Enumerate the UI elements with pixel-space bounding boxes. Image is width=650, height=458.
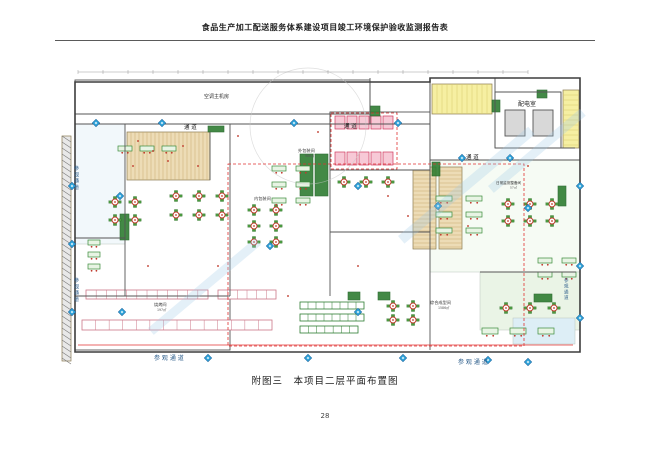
red-dot bbox=[407, 215, 409, 217]
red-dot bbox=[147, 265, 149, 267]
equipment-row bbox=[300, 314, 364, 321]
red-dot bbox=[217, 265, 219, 267]
red-dot bbox=[167, 160, 169, 162]
camera-marker-icon bbox=[304, 354, 311, 361]
machine-unit bbox=[492, 100, 500, 112]
equipment-row bbox=[82, 320, 272, 330]
machine-unit bbox=[315, 154, 328, 196]
machine-unit bbox=[120, 214, 129, 240]
camera-marker-icon bbox=[204, 354, 211, 361]
toilet-stalls bbox=[335, 152, 393, 165]
header-divider bbox=[55, 40, 595, 41]
room-label: 197㎡ bbox=[157, 307, 167, 312]
red-dot bbox=[467, 225, 469, 227]
camera-marker-icon bbox=[290, 119, 297, 126]
red-dot bbox=[132, 165, 134, 167]
room-label: 外包装间 bbox=[298, 147, 315, 154]
floorplan-figure: 通 道通 道通 道配电室空调主机房外包装间986㎡内包装间综合成型间1586㎡烧… bbox=[58, 66, 592, 370]
room bbox=[533, 110, 553, 136]
equipment-row bbox=[218, 290, 276, 299]
red-dot bbox=[387, 195, 389, 197]
visitor-corridor-label: 参观通道 bbox=[74, 165, 79, 191]
machine-unit bbox=[348, 292, 360, 300]
red-dot bbox=[357, 265, 359, 267]
hatched-area bbox=[432, 84, 492, 114]
room-label: 内包装间 bbox=[254, 195, 271, 202]
hatched-area bbox=[127, 132, 210, 180]
red-dot bbox=[152, 150, 154, 152]
red-dot bbox=[287, 295, 289, 297]
table-cluster bbox=[338, 177, 394, 188]
room-label: 通 道 bbox=[184, 123, 197, 131]
table-cluster bbox=[387, 301, 419, 326]
room-tint bbox=[75, 124, 125, 244]
camera-marker-icon bbox=[158, 119, 165, 126]
equipment-row bbox=[300, 326, 358, 333]
room-label: 空调主机房 bbox=[204, 93, 229, 100]
visitor-corridor-label: 参 观 通 道 bbox=[154, 354, 184, 362]
table-cluster bbox=[170, 191, 228, 221]
room-label: 通 道 bbox=[466, 153, 479, 161]
document-page: 食品生产加工配送服务体系建设项目竣工环境保护验收监测报告表 通 道通 道通 道配… bbox=[0, 0, 650, 458]
machine-unit bbox=[558, 186, 566, 206]
equipment-row bbox=[300, 302, 364, 309]
room-label: 986㎡ bbox=[305, 153, 315, 158]
machine-unit bbox=[378, 292, 390, 300]
room-label: 日常监测整备间 bbox=[496, 180, 522, 185]
visitor-corridor-label: 参 观 通 道 bbox=[458, 358, 488, 366]
machine-unit bbox=[537, 90, 547, 98]
room-label: 综合成型间 bbox=[430, 299, 451, 306]
room-label: 配电室 bbox=[518, 100, 536, 108]
room-label: 1586㎡ bbox=[438, 305, 450, 310]
visitor-corridor-label: 参观通道 bbox=[74, 277, 79, 303]
hatched-area bbox=[62, 136, 71, 364]
red-dot bbox=[182, 145, 184, 147]
floorplan-drawing: 通 道通 道通 道配电室空调主机房外包装间986㎡内包装间综合成型间1586㎡烧… bbox=[58, 66, 592, 370]
red-dot bbox=[527, 165, 529, 167]
camera-marker-icon bbox=[399, 354, 406, 361]
dimension-ticks bbox=[78, 70, 528, 74]
figure-caption: 附图三 本项目二层平面布置图 bbox=[0, 373, 650, 387]
red-dot bbox=[137, 140, 139, 142]
red-dot bbox=[197, 165, 199, 167]
room-label: 57㎡ bbox=[510, 185, 517, 190]
desk-cluster bbox=[88, 240, 100, 272]
machine-unit bbox=[208, 126, 224, 132]
camera-marker-icon bbox=[524, 358, 531, 365]
page-number: 28 bbox=[0, 412, 650, 420]
machine-unit bbox=[534, 294, 552, 302]
machine-unit bbox=[300, 154, 313, 196]
report-header-title: 食品生产加工配送服务体系建设项目竣工环境保护验收监测报告表 bbox=[0, 22, 650, 33]
machine-unit bbox=[370, 106, 380, 116]
red-dot bbox=[237, 135, 239, 137]
room-label: 烧烤间 bbox=[154, 301, 167, 308]
room-label: 通 道 bbox=[344, 122, 357, 130]
visitor-corridor-label: 参观通道 bbox=[564, 277, 569, 301]
red-dot bbox=[317, 131, 319, 133]
